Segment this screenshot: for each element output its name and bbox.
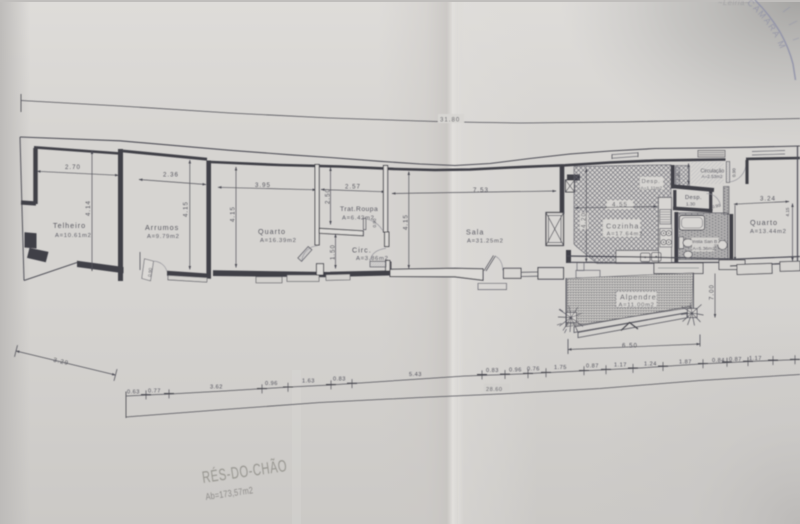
svg-text:5.43: 5.43 [409, 372, 422, 378]
svg-text:Desp.: Desp. [642, 179, 661, 185]
svg-text:A=6.42m2: A=6.42m2 [342, 216, 375, 222]
svg-text:A=2.53m2: A=2.53m2 [702, 174, 724, 179]
svg-text:0.96: 0.96 [265, 381, 278, 387]
svg-text:1.17: 1.17 [614, 363, 627, 369]
svg-text:Cozinha: Cozinha [606, 222, 639, 231]
svg-text:Arrumos: Arrumos [145, 223, 179, 232]
svg-text:6.50: 6.50 [622, 343, 638, 350]
svg-text:Insta San B: Insta San B [692, 239, 717, 245]
svg-text:A=13.44m2: A=13.44m2 [750, 229, 787, 235]
svg-text:3.62: 3.62 [210, 385, 223, 391]
svg-text:1.24: 1.24 [644, 361, 657, 367]
svg-text:0.87: 0.87 [729, 357, 742, 363]
svg-text:3.24: 3.24 [760, 196, 776, 203]
svg-text:0.76: 0.76 [527, 367, 540, 373]
svg-text:7.53: 7.53 [473, 187, 489, 194]
svg-text:0.83: 0.83 [486, 368, 499, 374]
svg-text:A=11.00m2: A=11.00m2 [619, 303, 655, 309]
svg-text:0.83: 0.83 [333, 377, 346, 383]
svg-text:4.15: 4.15 [230, 206, 237, 222]
svg-text:4.15: 4.15 [403, 214, 410, 230]
svg-text:Telheiro: Telheiro [53, 221, 86, 230]
svg-text:2.57: 2.57 [345, 184, 361, 191]
svg-text:Alpendre: Alpendre [620, 293, 657, 302]
svg-text:A=1.11m2: A=1.11m2 [641, 186, 663, 192]
svg-text:A=10.61m2: A=10.61m2 [55, 233, 92, 239]
svg-text:2.36: 2.36 [163, 172, 179, 179]
svg-text:1.87: 1.87 [679, 359, 692, 365]
svg-text:Desp.: Desp. [685, 195, 702, 201]
svg-text:0.90: 0.90 [731, 168, 736, 177]
svg-text:A=5.36m2: A=5.36m2 [693, 246, 716, 252]
svg-text:4.20: 4.20 [581, 212, 588, 228]
svg-text:4.55: 4.55 [612, 202, 628, 209]
svg-text:7.00: 7.00 [709, 284, 716, 300]
svg-text:28.60: 28.60 [486, 387, 503, 393]
svg-text:1.75: 1.75 [554, 365, 567, 371]
svg-text:A=16.39m2: A=16.39m2 [260, 238, 297, 244]
svg-text:0.96: 0.96 [509, 367, 522, 373]
svg-text:2.50: 2.50 [325, 188, 332, 204]
svg-text:1.63: 1.63 [302, 379, 315, 385]
svg-text:Sala: Sala [466, 228, 484, 237]
svg-text:1.30: 1.30 [686, 202, 696, 207]
svg-text:3.95: 3.95 [255, 182, 271, 189]
svg-text:Circ.: Circ. [352, 246, 372, 255]
svg-text:4.14: 4.14 [85, 200, 92, 216]
svg-text:0.63: 0.63 [127, 390, 140, 396]
svg-text:1.50: 1.50 [330, 244, 337, 260]
svg-text:1.17: 1.17 [749, 356, 762, 362]
svg-text:0.84: 0.84 [712, 358, 725, 364]
svg-text:4.15: 4.15 [785, 207, 790, 216]
svg-text:A=17.64m2: A=17.64m2 [607, 232, 644, 238]
svg-text:0.87: 0.87 [586, 364, 599, 370]
svg-text:A=31.25m2: A=31.25m2 [467, 239, 504, 245]
svg-text:A=9.79m2: A=9.79m2 [147, 234, 180, 240]
svg-text:4.15: 4.15 [183, 201, 190, 217]
svg-text:0.90: 0.90 [372, 218, 377, 227]
svg-text:~Leiria~: ~Leiria~ [718, 0, 750, 7]
svg-text:1.40: 1.40 [676, 172, 681, 181]
svg-text:0.77: 0.77 [148, 389, 161, 395]
svg-text:2.70: 2.70 [65, 164, 81, 171]
svg-text:Trat.Roupa: Trat.Roupa [340, 206, 378, 213]
svg-text:Quarto: Quarto [750, 218, 778, 227]
svg-text:Quarto: Quarto [258, 227, 286, 236]
svg-text:31.80: 31.80 [440, 117, 460, 124]
